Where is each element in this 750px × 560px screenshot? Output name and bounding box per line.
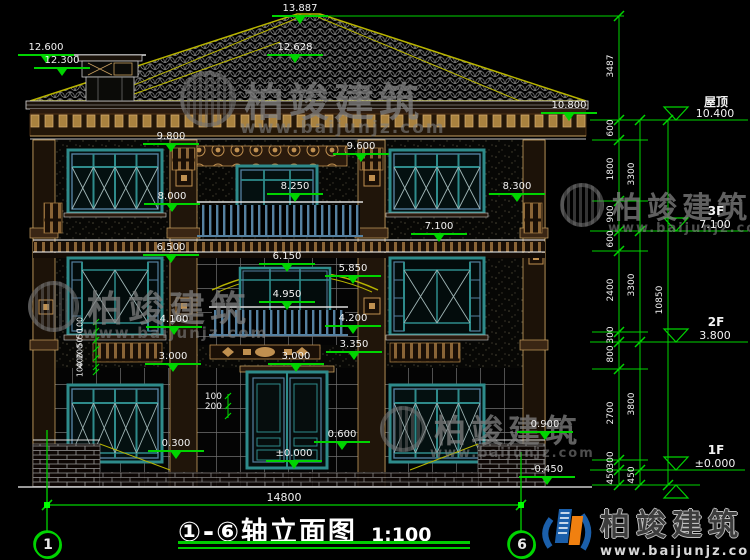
level-elevation: 7.100 [682, 218, 748, 231]
elevation-marker: 0.300 [148, 438, 204, 459]
elevation-marker: 5.850 [325, 263, 381, 284]
baijun-logo: 柏竣建筑 www.baijunjz.com [538, 500, 750, 559]
logo-brand-text: 柏竣建筑 [600, 500, 750, 544]
elevation-value: 9.600 [333, 141, 389, 152]
dim-mid: 3300 [627, 263, 637, 307]
elevation-marker: ±0.000 [266, 448, 322, 469]
level-name: 3F [688, 204, 744, 218]
elevation-value: ±0.000 [266, 448, 322, 459]
elevation-marker: 13.887 [272, 3, 328, 24]
elevation-value: 3.000 [145, 351, 201, 362]
dim-inner: 1800 [606, 147, 616, 191]
elevation-marker: 4.100 [146, 314, 202, 335]
balcony-railing-3f [197, 202, 363, 236]
elevation-marker: 8.000 [144, 191, 200, 212]
elevation-value: 4.950 [259, 289, 315, 300]
dim-mid: 3300 [627, 152, 637, 196]
elevation-marker: 12.300 [34, 55, 90, 76]
second-floor [64, 258, 488, 362]
elevation-marker: 10.800 [541, 100, 597, 121]
dim-outer: 10850 [655, 278, 665, 322]
elevation-marker: 9.800 [143, 131, 199, 152]
dim-inner: 2700 [606, 391, 616, 435]
elevation-value: 6.150 [259, 251, 315, 262]
elevation-value: 8.250 [267, 181, 323, 192]
elevation-value: 3.350 [326, 339, 382, 350]
detail-dim: 200 [192, 402, 222, 412]
axis-bubble-6: 6 [508, 531, 536, 559]
detail-dim: 100 [192, 392, 222, 402]
elevation-value: 4.100 [146, 314, 202, 325]
elevation-marker: 4.950 [259, 289, 315, 310]
elevation-marker: 0.600 [314, 429, 370, 450]
dim-inner: 800 [606, 332, 616, 376]
elevation-value: 12.600 [18, 42, 74, 53]
elevation-value: 6.500 [143, 242, 199, 253]
elevation-marker: -0.450 [519, 464, 575, 485]
elevation-marker: 8.250 [267, 181, 323, 202]
dim-inner: 450 [606, 454, 616, 498]
elevation-marker: 4.200 [325, 313, 381, 334]
elevation-marker: 6.150 [259, 251, 315, 272]
level-elevation: 10.400 [682, 107, 748, 120]
elevation-value: 12.628 [267, 42, 323, 53]
elevation-value: -0.450 [519, 464, 575, 475]
logo-url-text: www.baijunjz.com [600, 544, 750, 559]
title-underline [178, 541, 470, 544]
cad-elevation-canvas: 13.88712.60012.30012.62810.8009.8009.600… [0, 0, 750, 560]
elevation-marker: 9.600 [333, 141, 389, 162]
overall-width-dim: 14800 [234, 491, 334, 504]
watermark-url: www.baijunjz.com [430, 446, 595, 461]
elevation-value: 0.600 [314, 429, 370, 440]
dim-mid: 3800 [627, 382, 637, 426]
elevation-marker: 6.500 [143, 242, 199, 263]
watermark-url: www.baijunjz.com [240, 118, 446, 138]
elevation-marker: 8.300 [489, 181, 545, 202]
elevation-value: 4.200 [325, 313, 381, 324]
elevation-marker: 7.100 [411, 221, 467, 242]
level-name: 1F [688, 443, 744, 457]
detail-dim: 100 [76, 352, 85, 388]
elevation-value: 0.900 [517, 419, 573, 430]
elevation-value: 12.300 [34, 55, 90, 66]
level-elevation: ±0.000 [682, 457, 748, 470]
dim-inner: 3487 [606, 44, 616, 88]
elevation-value: 7.100 [411, 221, 467, 232]
elevation-marker: 3.000 [268, 351, 324, 372]
elevation-value: 8.000 [144, 191, 200, 202]
level-elevation: 3.800 [682, 329, 748, 342]
elevation-marker: 3.000 [145, 351, 201, 372]
dim-inner: 2400 [606, 268, 616, 312]
dim-inner: 600 [606, 217, 616, 261]
dim-inner: 600 [606, 106, 616, 150]
elevation-value: 10.800 [541, 100, 597, 111]
dim-mid: 450 [627, 453, 637, 497]
elevation-marker: 0.900 [517, 419, 573, 440]
baijun-logo-glyph [538, 501, 594, 559]
elevation-value: 3.000 [268, 351, 324, 362]
elevation-value: 13.887 [272, 3, 328, 14]
title-underline-2 [178, 547, 470, 549]
elevation-value: 8.300 [489, 181, 545, 192]
elevation-value: 0.300 [148, 438, 204, 449]
elevation-value: 5.850 [325, 263, 381, 274]
axis-bubble-1: 1 [34, 531, 62, 559]
level-name: 2F [688, 315, 744, 329]
elevation-value: 9.800 [143, 131, 199, 142]
elevation-marker: 3.350 [326, 339, 382, 360]
elevation-marker: 12.628 [267, 42, 323, 63]
